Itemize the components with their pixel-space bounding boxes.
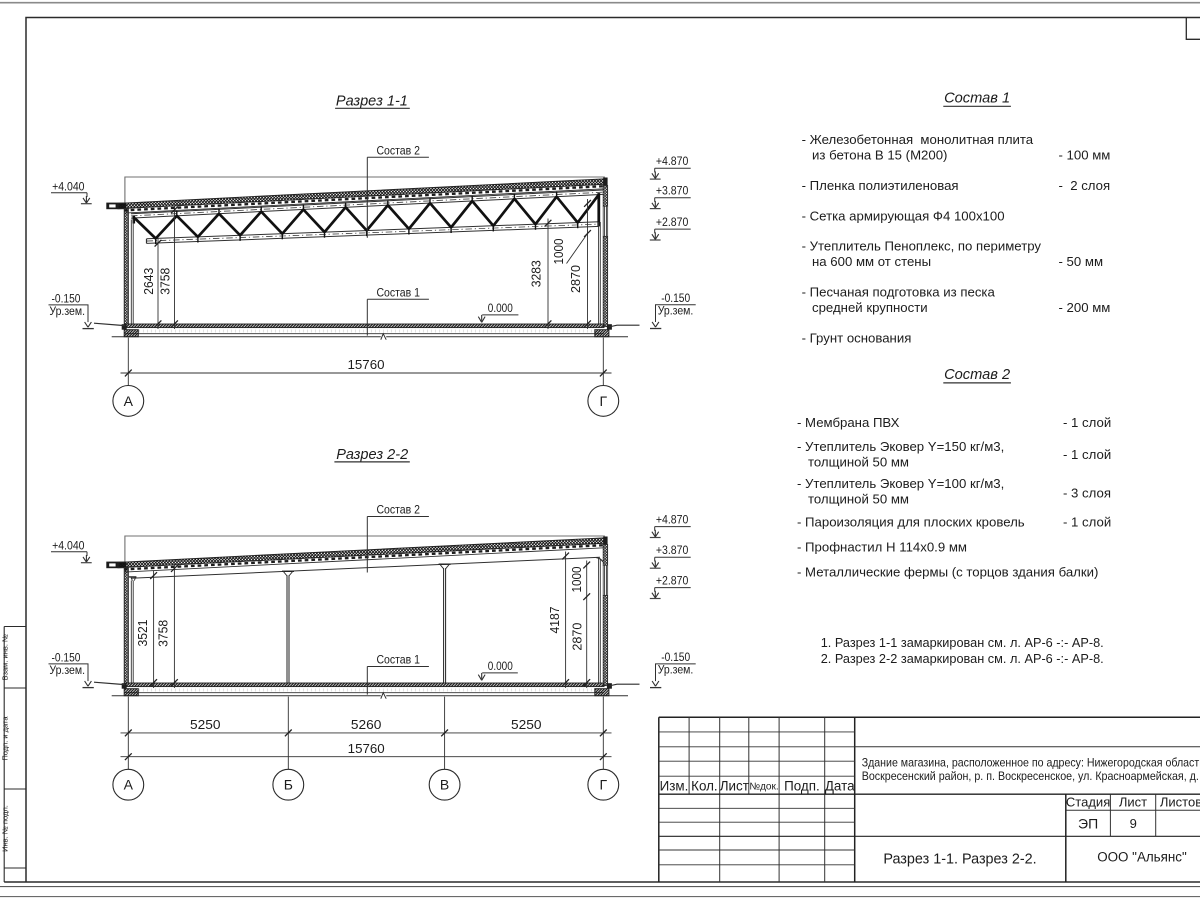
svg-text:- 1 слой: - 1 слой bbox=[1063, 514, 1111, 529]
svg-text:толщиной 50 мм: толщиной 50 мм bbox=[808, 492, 909, 507]
svg-text:Г: Г bbox=[600, 393, 608, 409]
svg-text:- Пленка полиэтиленовая: - Пленка полиэтиленовая bbox=[802, 178, 959, 193]
svg-text:+4.870: +4.870 bbox=[656, 154, 689, 168]
svg-text:3283: 3283 bbox=[528, 260, 543, 287]
svg-text:- Металлические фермы (с торцо: - Металлические фермы (с торцов здания б… bbox=[797, 565, 1098, 580]
svg-text:№док.: №док. bbox=[749, 782, 778, 793]
svg-text:- Пароизоляция для плоских кро: - Пароизоляция для плоских кровель bbox=[797, 514, 1025, 529]
svg-text:Инв. № подл.: Инв. № подл. bbox=[1, 805, 10, 852]
svg-text:А: А bbox=[124, 777, 134, 793]
svg-text:Стадия: Стадия bbox=[1066, 794, 1110, 809]
svg-text:Ур.зем.: Ур.зем. bbox=[49, 304, 85, 318]
svg-text:- Песчаная подготовка из песка: - Песчаная подготовка из песка bbox=[802, 285, 996, 300]
svg-text:- Грунт основания: - Грунт основания bbox=[802, 330, 912, 345]
svg-text:Состав 2: Состав 2 bbox=[376, 503, 420, 517]
svg-text:Подп.: Подп. bbox=[784, 778, 820, 793]
svg-text:- 100 мм: - 100 мм bbox=[1059, 147, 1111, 162]
svg-text:+4.040: +4.040 bbox=[52, 539, 85, 553]
svg-text:Кол.: Кол. bbox=[691, 778, 718, 793]
svg-text:2643: 2643 bbox=[141, 268, 156, 295]
svg-text:2870: 2870 bbox=[570, 623, 585, 651]
svg-text:Листов: Листов bbox=[1160, 794, 1200, 809]
svg-text:Состав 1: Состав 1 bbox=[376, 653, 420, 667]
svg-text:ООО "Альянс": ООО "Альянс" bbox=[1097, 849, 1187, 864]
svg-text:3758: 3758 bbox=[156, 620, 171, 647]
svg-text:из бетона В 15 (М200): из бетона В 15 (М200) bbox=[812, 147, 947, 162]
svg-text:Состав 2: Состав 2 bbox=[376, 144, 420, 158]
svg-text:- 50 мм: - 50 мм bbox=[1059, 254, 1104, 269]
svg-text:Лист: Лист bbox=[720, 778, 749, 793]
svg-text:- Утеплитель Эковер Y=100 кг/м: - Утеплитель Эковер Y=100 кг/м3, bbox=[797, 476, 1004, 491]
svg-text:Изм.: Изм. bbox=[660, 778, 689, 793]
svg-text:3758: 3758 bbox=[157, 268, 172, 295]
svg-text:+4.040: +4.040 bbox=[52, 180, 85, 194]
svg-text:9: 9 bbox=[1130, 816, 1137, 831]
svg-text:- Утеплитель Пеноплекс, по пер: - Утеплитель Пеноплекс, по периметру bbox=[802, 239, 1042, 254]
svg-text:5250: 5250 bbox=[511, 717, 542, 732]
svg-text:5250: 5250 bbox=[190, 717, 221, 732]
svg-text:+3.870: +3.870 bbox=[656, 543, 689, 557]
svg-text:+2.870: +2.870 bbox=[656, 573, 689, 587]
svg-text:Здание магазина, расположенное: Здание магазина, расположенное по адресу… bbox=[862, 756, 1200, 770]
svg-text:1. Разрез 1-1 замаркирован см.: 1. Разрез 1-1 замаркирован см. л. АР-6 -… bbox=[821, 635, 1104, 650]
svg-text:0.000: 0.000 bbox=[488, 659, 513, 673]
svg-text:- 1 слой: - 1 слой bbox=[1063, 415, 1111, 430]
svg-text:Ур.зем.: Ур.зем. bbox=[658, 663, 694, 677]
svg-text:- Утеплитель Эковер Y=150 кг/м: - Утеплитель Эковер Y=150 кг/м3, bbox=[797, 439, 1004, 454]
svg-text:Состав 1: Состав 1 bbox=[376, 285, 420, 299]
svg-text:Ур.зем.: Ур.зем. bbox=[658, 304, 694, 318]
svg-text:- 3 слоя: - 3 слоя bbox=[1063, 486, 1111, 501]
svg-text:1000: 1000 bbox=[551, 239, 566, 265]
svg-text:Состав 1: Состав 1 bbox=[944, 90, 1010, 107]
svg-text:0.000: 0.000 bbox=[488, 301, 513, 315]
svg-text:15760: 15760 bbox=[348, 741, 385, 756]
svg-text:Разрез 1-1. Разрез 2-2.: Разрез 1-1. Разрез 2-2. bbox=[883, 852, 1036, 868]
svg-text:1000: 1000 bbox=[569, 567, 584, 593]
svg-text:2. Разрез 2-2 замаркирован см.: 2. Разрез 2-2 замаркирован см. л. АР-6 -… bbox=[821, 651, 1104, 666]
svg-text:Лист: Лист bbox=[1119, 794, 1147, 809]
svg-text:Разрез 2-2: Разрез 2-2 bbox=[336, 446, 409, 463]
svg-text:- Профнастил Н 114х0.9 мм: - Профнастил Н 114х0.9 мм bbox=[797, 539, 967, 554]
svg-text:- 1 слой: - 1 слой bbox=[1063, 447, 1111, 462]
svg-text:- Сетка армирующая Ф4 100х100: - Сетка армирующая Ф4 100х100 bbox=[802, 208, 1005, 223]
svg-text:- Мембрана ПВХ: - Мембрана ПВХ bbox=[797, 415, 900, 430]
svg-text:на 600 мм от стены: на 600 мм от стены bbox=[812, 254, 931, 269]
svg-text:+3.870: +3.870 bbox=[656, 183, 689, 197]
svg-text:Разрез 1-1: Разрез 1-1 bbox=[336, 92, 408, 109]
svg-text:Дата: Дата bbox=[825, 778, 855, 793]
svg-text:Ур.зем.: Ур.зем. bbox=[49, 663, 85, 677]
svg-text:+2.870: +2.870 bbox=[656, 215, 689, 229]
svg-text:- 2 слоя: - 2 слоя bbox=[1059, 178, 1111, 193]
svg-text:2870: 2870 bbox=[568, 265, 583, 293]
svg-text:+4.870: +4.870 bbox=[656, 512, 689, 526]
svg-text:ЭП: ЭП bbox=[1078, 815, 1098, 831]
svg-text:5260: 5260 bbox=[351, 717, 382, 732]
svg-text:Взам. инв. №: Взам. инв. № bbox=[1, 634, 10, 680]
svg-text:- Железобетонная монолитная п: - Железобетонная монолитная плита bbox=[802, 132, 1034, 147]
svg-text:В: В bbox=[440, 777, 449, 793]
svg-text:Состав 2: Состав 2 bbox=[944, 366, 1011, 383]
svg-text:Воскресенский район, р. п. Вос: Воскресенский район, р. п. Воскресенское… bbox=[862, 769, 1200, 783]
svg-text:3521: 3521 bbox=[135, 620, 150, 647]
svg-text:- 200 мм: - 200 мм bbox=[1059, 300, 1111, 315]
svg-text:4187: 4187 bbox=[547, 607, 562, 634]
svg-text:А: А bbox=[124, 393, 134, 409]
svg-text:15760: 15760 bbox=[348, 357, 385, 372]
svg-text:Г: Г bbox=[600, 777, 608, 793]
svg-text:средней крупности: средней крупности bbox=[812, 300, 928, 315]
svg-text:Б: Б bbox=[284, 777, 293, 793]
svg-text:толщиной 50 мм: толщиной 50 мм bbox=[808, 454, 909, 469]
svg-text:Подп. и дата: Подп. и дата bbox=[1, 716, 10, 761]
